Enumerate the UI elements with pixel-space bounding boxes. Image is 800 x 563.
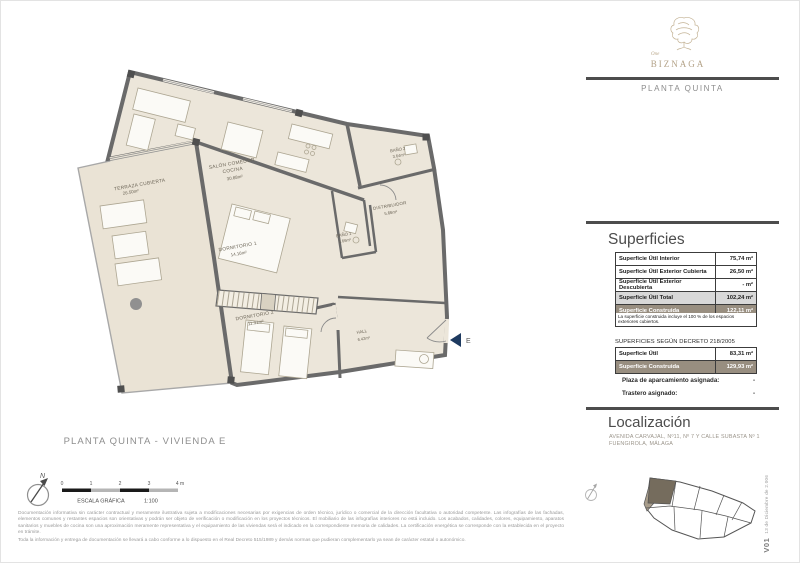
scale-tick: 1 <box>90 481 93 487</box>
divider-rule <box>586 221 779 224</box>
superficies-heading: Superficies <box>608 231 685 249</box>
surface-value: 102,24 m² <box>715 292 756 304</box>
storage-value: - <box>753 390 755 397</box>
superficies-table: Superficie Útil Interior 75,74 m² Superf… <box>615 252 757 318</box>
surface-value: 83,31 m² <box>715 348 756 360</box>
surface-value: 26,50 m² <box>715 266 756 278</box>
storage-label: Trastero asignado: <box>622 390 677 397</box>
table-row: Superficie Útil Exterior Descubierta - m… <box>616 279 756 292</box>
scale-bar: 0 1 2 3 4 m ESCALA GRÁFICA 1:100 <box>56 478 186 508</box>
divider-rule <box>586 407 779 410</box>
key-plan <box>630 470 760 558</box>
brand-word: One <box>651 52 659 57</box>
surface-label: Superficie Construida <box>616 361 715 373</box>
table-row: Superficie Útil Interior 75,74 m² <box>616 253 756 266</box>
surface-value: 129,93 m² <box>715 361 756 373</box>
decreto-table: Superficie Útil 83,31 m² Superficie Cons… <box>615 347 757 374</box>
scale-tick: 4 m <box>176 481 184 487</box>
parking-row: Plaza de aparcamiento asignada: - <box>622 377 755 384</box>
table-row: Superficie Útil Exterior Cubierta 26,50 … <box>616 266 756 279</box>
scale-tick: 3 <box>148 481 151 487</box>
brand-name: BIZNAGA <box>638 59 718 69</box>
table-row-built: Superficie Construida 129,93 m² <box>616 361 756 373</box>
table-row: Superficie Útil 83,31 m² <box>616 348 756 361</box>
address-line-2: FUENGIROLA, MÁLAGA <box>609 441 779 448</box>
surface-label: Superficie Útil <box>616 348 715 360</box>
localizacion-heading: Localización <box>608 414 691 431</box>
address: AVENIDA CARVAJAL, Nº11, Nº 7 Y CALLE SUB… <box>609 434 779 448</box>
surface-label: Superficie Útil Exterior Descubierta <box>616 279 715 291</box>
version-date: 13 de Diciembre de 2.006 <box>764 475 769 534</box>
table-row-total: Superficie Útil Total 102,24 m² <box>616 292 756 305</box>
divider-rule <box>586 77 779 80</box>
surface-value: - m² <box>715 279 756 291</box>
floor-plan: TERRAZA CUBIERTA 26.50m² SALÓN COMEDOR C… <box>30 40 500 460</box>
surface-label: Superficie Útil Interior <box>616 253 715 265</box>
version-code: V01 <box>762 538 771 553</box>
disclaimer-paragraph-1: Documentación informativa sin carácter c… <box>18 511 564 537</box>
scale-ratio: 1:100 <box>144 499 158 505</box>
storage-row: Trastero asignado: - <box>622 390 755 397</box>
surface-label: Superficie Útil Total <box>616 292 715 304</box>
north-label: N <box>40 473 46 480</box>
surface-value: 75,74 m² <box>715 253 756 265</box>
superficies-note: La superficie construida incluye el 100 … <box>615 313 757 327</box>
version-block: V01 13 de Diciembre de 2.006 <box>762 466 771 562</box>
plan-title: PLANTA QUINTA - VIVIENDA E <box>45 436 245 447</box>
decreto-title: SUPERFICIES SEGÚN DECRETO 218/2005 <box>615 339 735 345</box>
surface-label: Superficie Útil Exterior Cubierta <box>616 266 715 278</box>
floor-label: PLANTA QUINTA <box>586 84 779 93</box>
scale-tick: 0 <box>61 481 64 487</box>
scale-caption: ESCALA GRÁFICA <box>77 498 125 505</box>
scale-tick: 2 <box>119 481 122 487</box>
brand-tree-icon <box>664 14 704 52</box>
entrance-arrow-icon <box>450 333 461 347</box>
mini-compass-icon <box>584 479 602 505</box>
disclaimer-paragraph-2: Toda la información y entrega de documen… <box>18 538 564 544</box>
parking-value: - <box>753 377 755 384</box>
address-line-1: AVENIDA CARVAJAL, Nº11, Nº 7 Y CALLE SUB… <box>609 434 779 441</box>
entrance-label: E <box>466 338 471 345</box>
parking-label: Plaza de aparcamiento asignada: <box>622 377 719 384</box>
plan-sheet-page: TERRAZA CUBIERTA 26.50m² SALÓN COMEDOR C… <box>0 0 800 563</box>
